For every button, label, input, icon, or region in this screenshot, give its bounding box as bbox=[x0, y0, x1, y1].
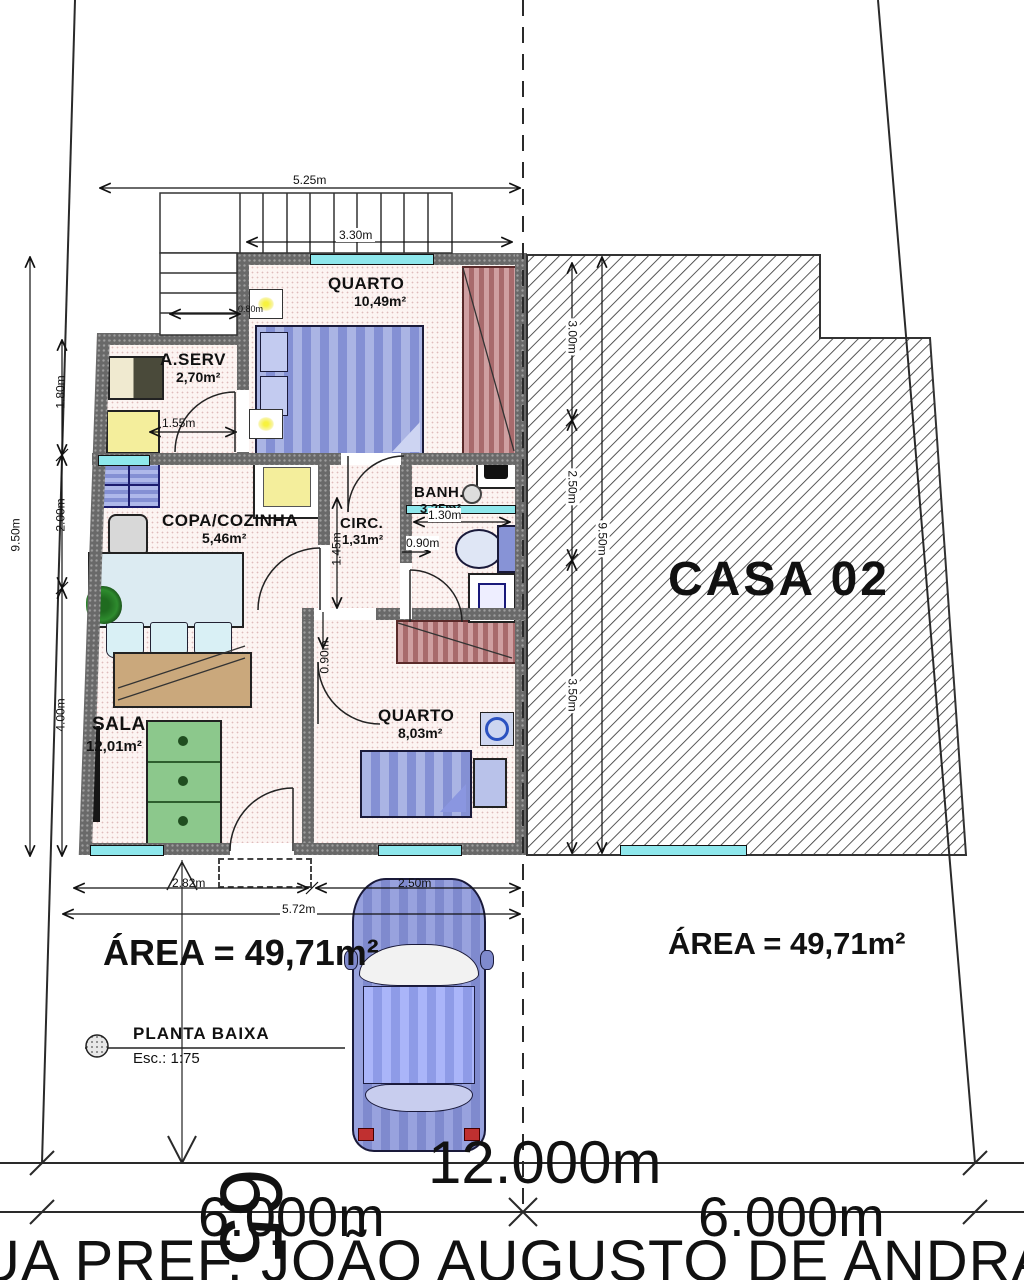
house-area-label: ÁREA = 49,71m² bbox=[103, 932, 379, 974]
room-label-quarto1: QUARTO bbox=[328, 274, 404, 294]
room-area-aserv: 2,70m² bbox=[176, 369, 220, 385]
room-label-sala: SALA bbox=[92, 714, 146, 736]
room-area-quarto1: 10,49m² bbox=[354, 293, 406, 309]
room-label-banh: BANH. bbox=[414, 484, 464, 501]
room-area-circ: 1,31m² bbox=[342, 532, 383, 547]
window bbox=[378, 845, 462, 856]
window bbox=[310, 254, 434, 265]
dim-front-left: 2.82m bbox=[172, 876, 205, 890]
dim-left-seg2: 2.00m bbox=[54, 498, 68, 531]
plan-linework bbox=[0, 0, 1024, 1280]
dimension-lines bbox=[30, 188, 602, 914]
room-label-copa: COPA/COZINHA bbox=[162, 511, 298, 531]
dim-top-width: 5.25m bbox=[290, 173, 329, 187]
room-area-quarto2: 8,03m² bbox=[398, 725, 442, 741]
window bbox=[98, 455, 150, 466]
dim-aserv-door: 1.55m bbox=[162, 416, 195, 430]
caption-scale: Esc.: 1:75 bbox=[133, 1050, 200, 1067]
dim-front-total: 5.72m bbox=[280, 902, 317, 916]
room-label-quarto2: QUARTO bbox=[378, 706, 454, 726]
dim-right-seg3: 3.50m bbox=[566, 676, 580, 713]
room-area-copa: 5,46m² bbox=[202, 530, 246, 546]
window bbox=[90, 845, 164, 856]
dim-right-seg1: 3.00m bbox=[566, 318, 580, 355]
dim-stair-width: 3.30m bbox=[336, 228, 375, 242]
lot-total-width: 12.000m bbox=[428, 1128, 662, 1197]
room-label-circ: CIRC. bbox=[340, 515, 383, 532]
dim-circ-door: 0.90m bbox=[406, 536, 439, 550]
dim-front-car: 2.50m bbox=[398, 876, 431, 890]
room-label-aserv: A.SERV bbox=[160, 350, 226, 370]
dim-banh-width: 1.30m bbox=[428, 508, 461, 522]
room-area-sala: 12,01m² bbox=[86, 738, 142, 755]
dim-left-seg1: 1.80m bbox=[54, 375, 68, 408]
dim-stair-run: 0.80m bbox=[238, 304, 263, 314]
dim-left-total: 9.50m bbox=[9, 518, 23, 551]
door-arcs bbox=[175, 392, 462, 851]
street-name: UA PREF. JOÃO AUGUSTO DE ANDRA bbox=[0, 1228, 1024, 1280]
caption-title: PLANTA BAIXA bbox=[133, 1024, 270, 1044]
casa02-label: CASA 02 bbox=[668, 552, 890, 607]
dim-left-seg3: 4.00m bbox=[54, 698, 68, 731]
neighbor-area-label: ÁREA = 49,71m² bbox=[668, 926, 905, 962]
window bbox=[620, 845, 747, 856]
dim-right-total: 9.50m bbox=[596, 520, 610, 557]
floor-plan-drawing: QUARTO 10,49m² A.SERV 2,70m² COPA/COZINH… bbox=[0, 0, 1024, 1280]
dim-right-seg2: 2.50m bbox=[566, 468, 580, 505]
dim-quarto2-door: 0.90m bbox=[318, 640, 332, 673]
dim-circ-len: 1.45m bbox=[330, 532, 344, 565]
